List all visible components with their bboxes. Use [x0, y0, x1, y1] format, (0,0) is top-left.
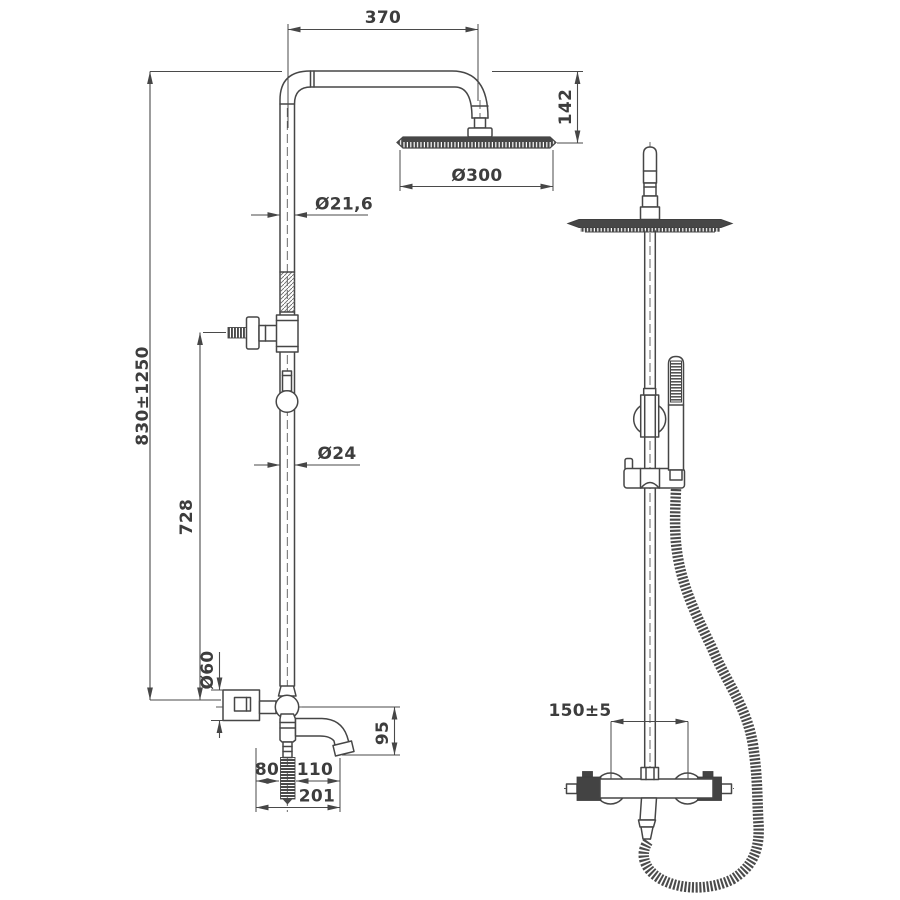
dim-label-830-1250: 830±1250	[133, 346, 153, 445]
overhead-shower-front	[568, 220, 732, 233]
dim-label-201: 201	[299, 787, 335, 807]
bracket-flange	[247, 317, 260, 349]
dim-head-diameter: Ø300	[400, 150, 553, 191]
mixer-outlet	[640, 798, 657, 820]
dim-lower-column: 728	[177, 333, 226, 701]
front-view: 150±5	[548, 142, 758, 887]
mixer-front	[564, 768, 734, 840]
dim-label-142: 142	[556, 89, 576, 125]
dim-label-370: 370	[365, 8, 401, 28]
hand-shower	[669, 357, 684, 481]
mixer-top-nut	[641, 768, 659, 780]
slider-front	[634, 389, 666, 438]
wall-bracket	[228, 315, 298, 352]
column-top-cap	[641, 147, 660, 220]
bracket-arm	[259, 326, 277, 342]
technical-drawing-page: 370 830±1250 142 Ø300 Ø21,6	[0, 0, 900, 900]
overhead-shower-side	[397, 137, 556, 148]
hose-connector-thread	[281, 758, 296, 800]
column-pipe-and-arm	[280, 71, 488, 686]
bracket-screw	[228, 328, 247, 339]
dim-label-60: Ø60	[198, 650, 218, 689]
pipe-thread-section	[280, 272, 295, 312]
mixer-handle-left	[577, 777, 601, 801]
dim-upper-pipe-diameter: Ø21,6	[251, 195, 373, 216]
side-view: 370 830±1250 142 Ø300 Ø21,6	[133, 8, 583, 812]
dim-arm-width: 370	[288, 8, 478, 128]
shower-column-drawing: 370 830±1250 142 Ø300 Ø21,6	[0, 0, 900, 900]
dim-lower-pipe-diameter: Ø24	[254, 444, 360, 465]
dim-valve-centers: 150±5	[548, 701, 688, 779]
dim-label-21-6: Ø21,6	[315, 195, 373, 215]
dim-label-95: 95	[373, 721, 393, 745]
dim-label-728: 728	[177, 499, 197, 535]
dim-label-110: 110	[297, 760, 333, 780]
dim-head-drop: 142	[492, 72, 583, 144]
mixer-bar	[600, 779, 713, 798]
dim-column-height: 830±1250	[133, 72, 282, 701]
shower-hose	[644, 489, 759, 887]
dim-bottom-offsets: 80 110 201	[255, 748, 340, 812]
dim-label-300: Ø300	[451, 166, 502, 186]
dim-label-80: 80	[255, 760, 279, 780]
dim-label-150-5: 150±5	[548, 701, 611, 721]
dim-label-24: Ø24	[317, 444, 356, 464]
dim-flange-diameter: Ø60	[198, 650, 224, 738]
